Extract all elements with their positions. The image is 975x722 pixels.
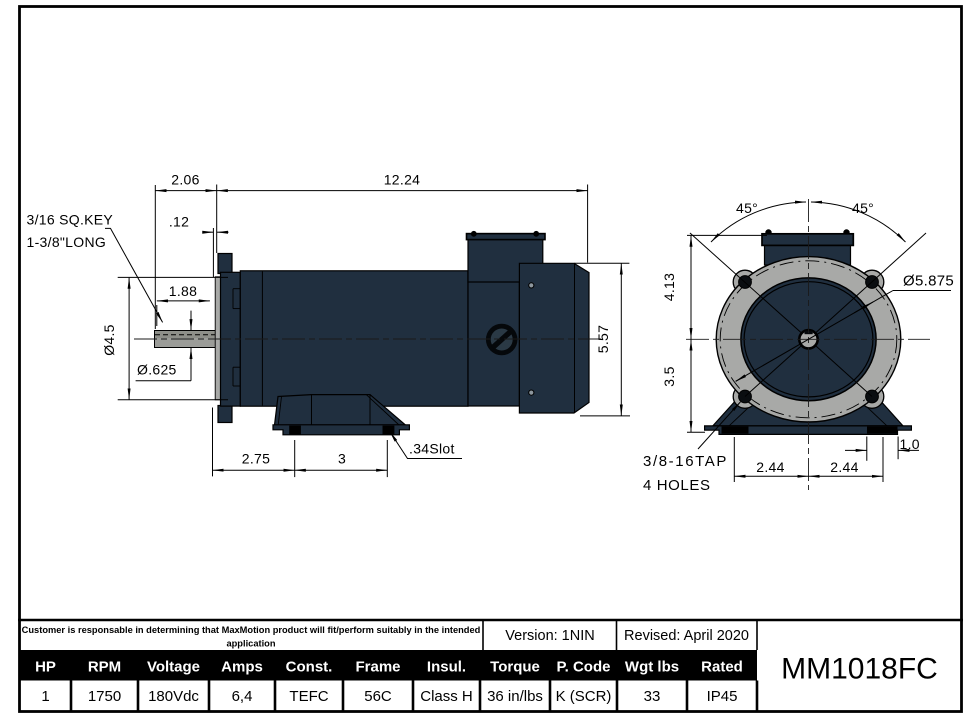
svg-text:Rated: Rated: [701, 659, 743, 676]
svg-text:Class H: Class H: [420, 688, 473, 705]
svg-text:180Vdc: 180Vdc: [148, 688, 199, 705]
svg-text:4.13: 4.13: [661, 273, 677, 301]
svg-text:3/8-16TAP: 3/8-16TAP: [643, 453, 728, 470]
svg-text:Customer is responsable in det: Customer is responsable in determining t…: [22, 625, 481, 635]
svg-text:6,4: 6,4: [232, 688, 253, 705]
svg-text:Voltage: Voltage: [147, 659, 200, 676]
svg-text:Ø4.5: Ø4.5: [101, 324, 117, 356]
svg-text:45°: 45°: [852, 200, 874, 216]
svg-text:2.44: 2.44: [830, 459, 858, 475]
svg-text:36 in/lbs: 36 in/lbs: [487, 688, 543, 705]
svg-text:33: 33: [644, 688, 661, 705]
svg-text:.12: .12: [169, 214, 189, 230]
svg-text:K (SCR): K (SCR): [556, 688, 612, 705]
svg-text:1.0: 1.0: [900, 436, 920, 452]
svg-text:Torque: Torque: [490, 659, 540, 676]
svg-text:Frame: Frame: [355, 659, 400, 676]
svg-text:Version: 1NIN: Version: 1NIN: [505, 628, 594, 644]
svg-text:Ø.625: Ø.625: [137, 362, 177, 378]
svg-text:Const.: Const.: [286, 659, 333, 676]
svg-text:3: 3: [338, 451, 346, 467]
svg-text:MM1018FC: MM1018FC: [781, 653, 938, 686]
svg-text:1: 1: [41, 688, 49, 705]
svg-text:4 HΟLES: 4 HΟLES: [643, 477, 711, 494]
svg-text:2.75: 2.75: [242, 451, 270, 467]
svg-text:IP45: IP45: [707, 688, 738, 705]
svg-text:2.44: 2.44: [756, 459, 784, 475]
svg-text:5.57: 5.57: [595, 325, 611, 353]
svg-text:HP: HP: [35, 659, 56, 676]
svg-text:12.24: 12.24: [384, 172, 421, 188]
svg-text:1.88: 1.88: [169, 283, 197, 299]
svg-text:56C: 56C: [364, 688, 392, 705]
svg-text:3/16 SQ.KEY: 3/16 SQ.KEY: [27, 211, 114, 227]
svg-text:TEFC: TEFC: [289, 688, 328, 705]
svg-text:P. Code: P. Code: [557, 659, 611, 676]
svg-text:3.5: 3.5: [661, 366, 677, 386]
svg-text:1-3/8"LΟNG: 1-3/8"LΟNG: [27, 234, 107, 250]
svg-text:application: application: [226, 639, 275, 649]
svg-text:Ø5.875: Ø5.875: [903, 273, 954, 290]
svg-text:Insul.: Insul.: [427, 659, 466, 676]
svg-text:1750: 1750: [88, 688, 121, 705]
svg-text:Wgt lbs: Wgt lbs: [625, 659, 679, 676]
svg-text:Amps: Amps: [221, 659, 263, 676]
svg-text:RPM: RPM: [88, 659, 121, 676]
svg-text:Revised: April 2020: Revised: April 2020: [624, 628, 749, 644]
svg-text:.34Slot: .34Slot: [409, 441, 455, 457]
svg-text:45°: 45°: [736, 200, 758, 216]
svg-text:2.06: 2.06: [171, 172, 199, 188]
